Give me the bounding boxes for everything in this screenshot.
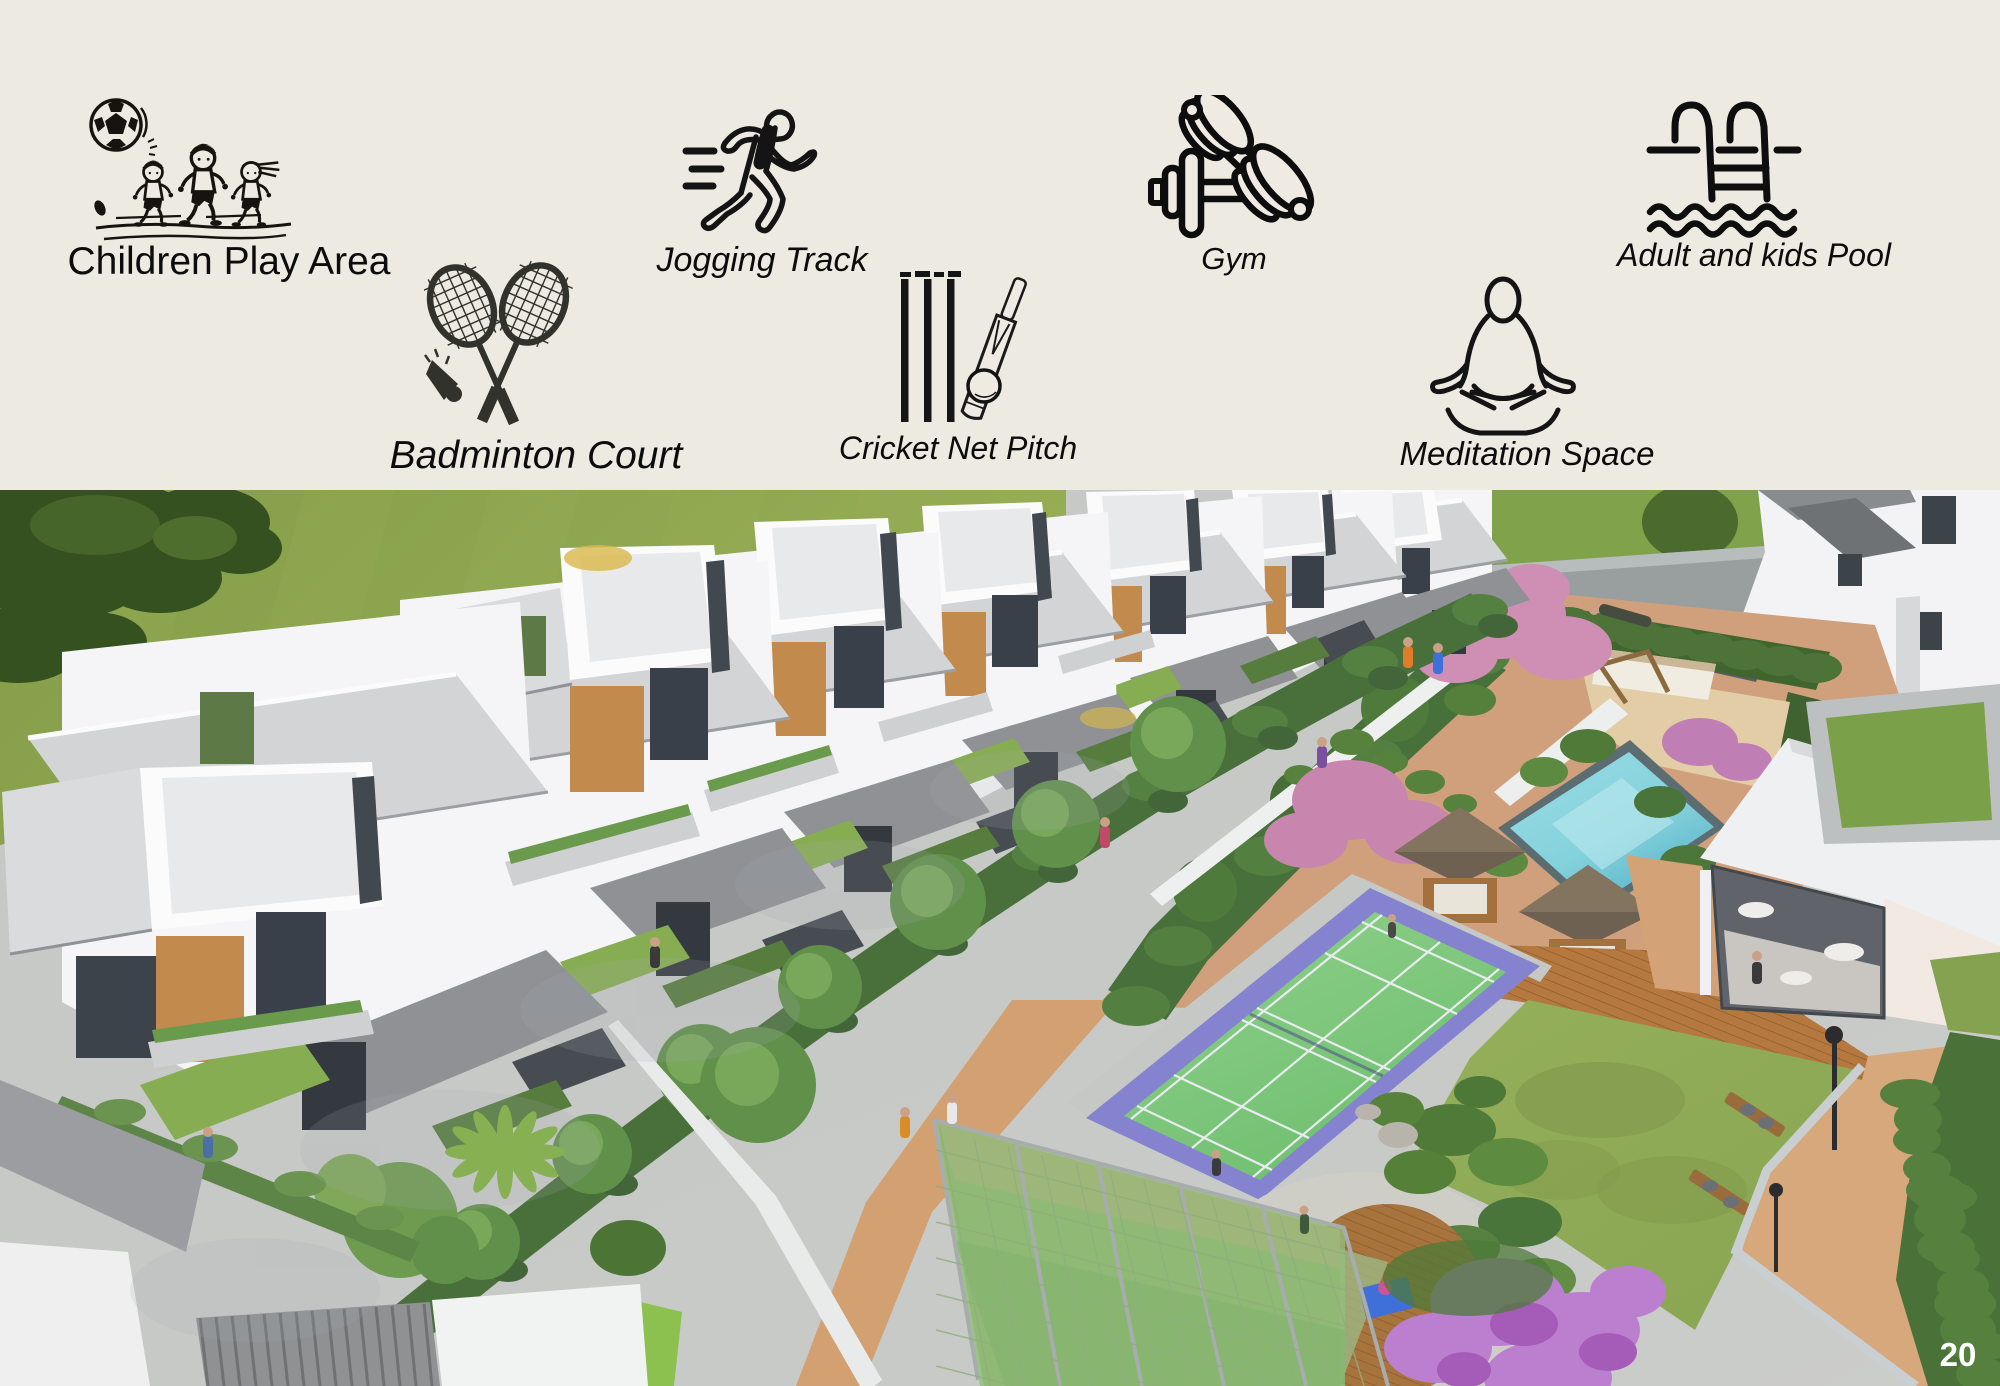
- svg-text:20: 20: [1940, 1336, 1977, 1373]
